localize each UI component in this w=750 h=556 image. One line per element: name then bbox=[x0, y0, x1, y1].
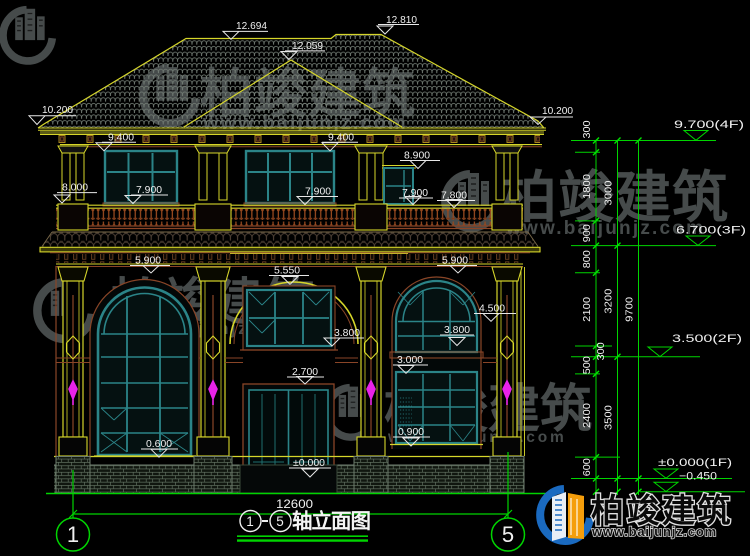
svg-text:4.500: 4.500 bbox=[479, 303, 505, 315]
svg-text:5: 5 bbox=[276, 514, 284, 529]
svg-text:±0.000(1F): ±0.000(1F) bbox=[658, 457, 732, 469]
svg-text:3500: 3500 bbox=[603, 405, 615, 430]
svg-text:1: 1 bbox=[67, 522, 79, 547]
svg-text:800: 800 bbox=[581, 250, 593, 268]
svg-text:7.900: 7.900 bbox=[402, 187, 428, 199]
svg-text:7.800: 7.800 bbox=[441, 190, 467, 202]
svg-text:±0.000: ±0.000 bbox=[293, 457, 325, 469]
svg-text:−0.450: −0.450 bbox=[679, 471, 717, 483]
svg-text:1800: 1800 bbox=[581, 174, 593, 199]
svg-text:5.900: 5.900 bbox=[135, 255, 161, 267]
svg-text:5.900: 5.900 bbox=[442, 255, 468, 267]
svg-text:5.550: 5.550 bbox=[274, 265, 300, 277]
svg-text:3200: 3200 bbox=[603, 289, 615, 314]
svg-text:3.800: 3.800 bbox=[444, 324, 470, 336]
svg-text:7.900: 7.900 bbox=[305, 186, 331, 198]
svg-text:7.900: 7.900 bbox=[136, 184, 162, 196]
svg-text:600: 600 bbox=[581, 458, 593, 476]
svg-text:9.400: 9.400 bbox=[108, 132, 134, 144]
svg-text:0.900: 0.900 bbox=[398, 426, 424, 438]
svg-text:2.700: 2.700 bbox=[292, 366, 318, 378]
svg-text:12.694: 12.694 bbox=[236, 20, 267, 32]
svg-text:300: 300 bbox=[595, 342, 607, 360]
svg-text:3.000: 3.000 bbox=[397, 354, 423, 366]
svg-text:900: 900 bbox=[581, 224, 593, 242]
svg-text:0.600: 0.600 bbox=[146, 438, 172, 450]
svg-text:10.200: 10.200 bbox=[542, 105, 573, 117]
svg-text:www.baijunjz.com: www.baijunjz.com bbox=[591, 524, 717, 539]
svg-text:3.500(2F): 3.500(2F) bbox=[672, 333, 742, 345]
svg-text:12.059: 12.059 bbox=[292, 40, 323, 52]
svg-text:轴立面图: 轴立面图 bbox=[292, 509, 370, 533]
svg-text:10.200: 10.200 bbox=[42, 104, 73, 116]
svg-text:5: 5 bbox=[502, 522, 514, 547]
svg-text:9.700(4F): 9.700(4F) bbox=[674, 119, 744, 131]
svg-text:8.900: 8.900 bbox=[404, 150, 430, 162]
svg-text:1: 1 bbox=[246, 514, 254, 529]
svg-text:6.700(3F): 6.700(3F) bbox=[676, 225, 746, 237]
svg-text:9.400: 9.400 bbox=[328, 132, 354, 144]
svg-text:500: 500 bbox=[581, 356, 593, 374]
svg-text:9700: 9700 bbox=[624, 297, 636, 322]
svg-text:3000: 3000 bbox=[603, 180, 615, 205]
svg-text:300: 300 bbox=[581, 120, 593, 138]
svg-text:3.800: 3.800 bbox=[334, 327, 360, 339]
svg-text:2100: 2100 bbox=[581, 297, 593, 322]
svg-text:12.810: 12.810 bbox=[386, 14, 417, 26]
svg-text:2400: 2400 bbox=[581, 403, 593, 428]
svg-text:8.000: 8.000 bbox=[62, 182, 88, 194]
